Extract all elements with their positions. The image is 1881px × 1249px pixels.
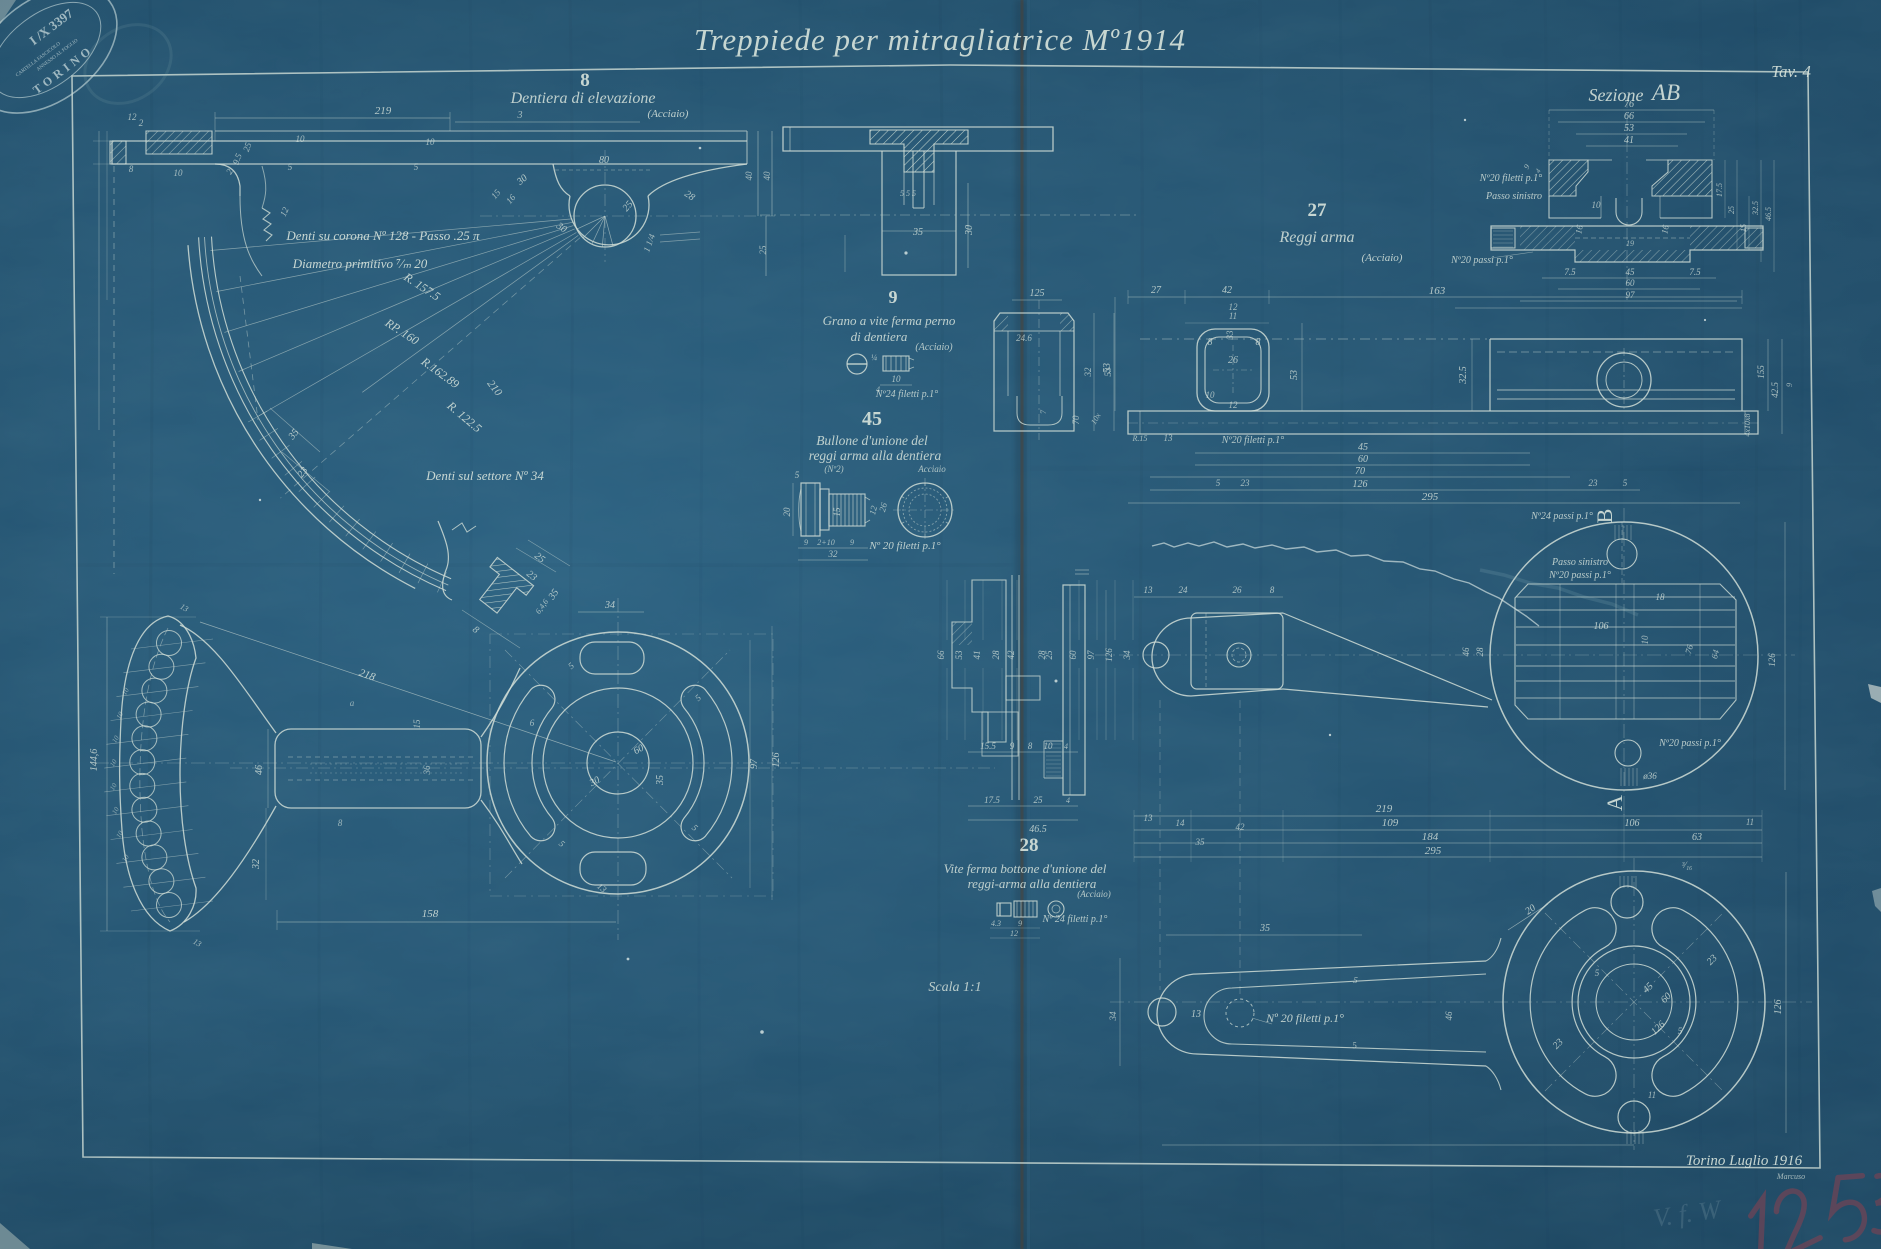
svg-text:Dentiera di elevazione: Dentiera di elevazione bbox=[510, 90, 656, 107]
svg-text:155: 155 bbox=[1756, 365, 1766, 379]
svg-text:53: 53 bbox=[954, 650, 964, 660]
svg-text:2: 2 bbox=[139, 118, 144, 128]
svg-text:32: 32 bbox=[1083, 367, 1093, 378]
svg-text:41: 41 bbox=[972, 651, 982, 660]
svg-text:106: 106 bbox=[1625, 818, 1640, 829]
svg-text:158: 158 bbox=[422, 908, 439, 920]
svg-text:42: 42 bbox=[1222, 285, 1232, 296]
svg-text:126: 126 bbox=[771, 753, 782, 768]
svg-text:Treppiede per mitragliatrice M: Treppiede per mitragliatrice Mº1914 bbox=[694, 22, 1186, 57]
svg-text:53: 53 bbox=[1289, 370, 1300, 380]
svg-text:25: 25 bbox=[1044, 650, 1054, 660]
svg-text:13: 13 bbox=[1191, 1009, 1201, 1020]
svg-text:5: 5 bbox=[1595, 968, 1600, 978]
svg-text:35: 35 bbox=[1259, 923, 1270, 934]
svg-text:25: 25 bbox=[1034, 795, 1044, 805]
svg-text:12: 12 bbox=[128, 112, 138, 122]
svg-text:18: 18 bbox=[1656, 592, 1666, 602]
svg-text:46: 46 bbox=[1444, 1011, 1454, 1021]
svg-text:10: 10 bbox=[296, 134, 306, 144]
svg-text:35: 35 bbox=[655, 775, 666, 786]
svg-text:46.5: 46.5 bbox=[1764, 207, 1773, 221]
svg-text:9: 9 bbox=[1785, 383, 1794, 387]
svg-text:10: 10 bbox=[426, 137, 436, 147]
svg-text:Nº20 filetti p.1°: Nº20 filetti p.1° bbox=[1479, 173, 1542, 184]
svg-text:28: 28 bbox=[991, 650, 1001, 660]
svg-text:9: 9 bbox=[850, 538, 854, 547]
svg-text:8: 8 bbox=[1256, 337, 1261, 348]
svg-text:8: 8 bbox=[129, 164, 134, 174]
svg-text:12: 12 bbox=[1229, 400, 1239, 410]
svg-text:5: 5 bbox=[288, 162, 293, 172]
svg-text:(Acciaio): (Acciaio) bbox=[648, 108, 689, 120]
svg-text:13: 13 bbox=[1144, 585, 1154, 595]
svg-text:Nº20 passi p.1°: Nº20 passi p.1° bbox=[1548, 570, 1611, 581]
svg-text:R.15: R.15 bbox=[1132, 434, 1148, 443]
svg-text:5: 5 bbox=[1678, 1026, 1683, 1036]
svg-text:12: 12 bbox=[1010, 929, 1018, 938]
svg-text:5: 5 bbox=[1623, 478, 1628, 488]
svg-text:12: 12 bbox=[1229, 302, 1239, 312]
svg-text:40: 40 bbox=[762, 171, 772, 181]
svg-text:Diametro primitivo ⁷⁄ₘ 20: Diametro primitivo ⁷⁄ₘ 20 bbox=[292, 256, 428, 271]
svg-text:Scala 1:1: Scala 1:1 bbox=[928, 980, 981, 995]
svg-text:7.5: 7.5 bbox=[1564, 267, 1576, 277]
svg-text:³⁄₁₆: ³⁄₁₆ bbox=[1682, 860, 1692, 870]
svg-text:42: 42 bbox=[1006, 650, 1016, 660]
svg-text:30: 30 bbox=[964, 225, 975, 236]
svg-text:8: 8 bbox=[1208, 337, 1213, 348]
svg-text:36: 36 bbox=[422, 765, 432, 776]
svg-text:Tav. 4: Tav. 4 bbox=[1771, 62, 1811, 81]
svg-text:42.5: 42.5 bbox=[1770, 382, 1780, 398]
svg-text:17.5: 17.5 bbox=[1715, 183, 1724, 197]
svg-text:a: a bbox=[350, 698, 355, 708]
svg-text:Denti sul settore Nº 34: Denti sul settore Nº 34 bbox=[425, 468, 544, 483]
svg-text:Grano a vite ferma perno: Grano a vite ferma perno bbox=[823, 313, 956, 328]
svg-text:45: 45 bbox=[1626, 267, 1636, 277]
svg-text:Nº24 passi p.1°: Nº24 passi p.1° bbox=[1530, 511, 1593, 522]
svg-text:219: 219 bbox=[1376, 803, 1393, 815]
svg-text:24: 24 bbox=[1179, 585, 1189, 595]
svg-text:35: 35 bbox=[912, 227, 923, 238]
svg-text:Passo sinistro: Passo sinistro bbox=[1485, 191, 1542, 202]
svg-text:8: 8 bbox=[580, 70, 590, 91]
svg-text:4x10x8: 4x10x8 bbox=[1743, 413, 1752, 436]
svg-text:35: 35 bbox=[1195, 837, 1206, 847]
svg-text:26: 26 bbox=[1233, 585, 1243, 595]
svg-text:5: 5 bbox=[1216, 478, 1221, 488]
svg-text:11: 11 bbox=[1746, 817, 1754, 827]
svg-text:5: 5 bbox=[414, 162, 419, 172]
svg-text:15: 15 bbox=[832, 507, 842, 517]
svg-text:8: 8 bbox=[1270, 585, 1275, 595]
svg-text:A: A bbox=[1602, 795, 1627, 811]
svg-text:Bullone d'unione del: Bullone d'unione del bbox=[816, 433, 928, 448]
svg-text:(Acciaio): (Acciaio) bbox=[1077, 889, 1110, 899]
svg-text:13: 13 bbox=[1144, 813, 1154, 823]
svg-text:10: 10 bbox=[1592, 200, 1602, 210]
svg-text:144,6: 144,6 bbox=[89, 749, 100, 772]
svg-text:9: 9 bbox=[1010, 741, 1015, 751]
svg-text:70: 70 bbox=[1355, 466, 1365, 477]
svg-text:Nº24 filetti p.1°: Nº24 filetti p.1° bbox=[875, 389, 938, 400]
svg-text:15: 15 bbox=[1739, 224, 1748, 232]
svg-text:45: 45 bbox=[862, 408, 882, 430]
svg-text:97: 97 bbox=[749, 758, 760, 769]
svg-text:126: 126 bbox=[1353, 479, 1368, 490]
svg-text:4: 4 bbox=[1066, 796, 1070, 805]
svg-text:5 5 5: 5 5 5 bbox=[900, 189, 916, 198]
svg-text:40: 40 bbox=[744, 171, 754, 181]
svg-text:Sezione: Sezione bbox=[1589, 85, 1644, 105]
svg-text:10: 10 bbox=[1640, 635, 1650, 645]
svg-text:9: 9 bbox=[804, 538, 808, 547]
svg-text:25: 25 bbox=[1727, 206, 1736, 214]
svg-text:125: 125 bbox=[1030, 288, 1045, 299]
svg-text:27: 27 bbox=[1151, 285, 1162, 296]
svg-text:20: 20 bbox=[782, 507, 792, 517]
svg-text:32: 32 bbox=[251, 859, 262, 870]
svg-text:Vite ferma bottone d'unione de: Vite ferma bottone d'unione del bbox=[944, 861, 1107, 876]
svg-text:10: 10 bbox=[1044, 741, 1054, 751]
svg-text:Nº 20 filetti p.1°: Nº 20 filetti p.1° bbox=[868, 540, 941, 552]
svg-text:109: 109 bbox=[1382, 817, 1399, 829]
svg-text:2+10: 2+10 bbox=[817, 538, 834, 547]
svg-text:19: 19 bbox=[1626, 239, 1634, 248]
svg-text:Torino Luglio 1916: Torino Luglio 1916 bbox=[1686, 1153, 1803, 1169]
svg-text:Nº 20 filetti p.1°: Nº 20 filetti p.1° bbox=[1265, 1011, 1344, 1025]
svg-text:10: 10 bbox=[892, 374, 902, 384]
svg-text:8: 8 bbox=[1028, 741, 1033, 751]
svg-text:63: 63 bbox=[1692, 832, 1702, 843]
svg-text:53: 53 bbox=[1102, 363, 1113, 373]
svg-text:32: 32 bbox=[828, 549, 839, 559]
svg-text:Reggi arma: Reggi arma bbox=[1278, 229, 1354, 246]
svg-text:41: 41 bbox=[1624, 135, 1634, 146]
svg-text:4.3: 4.3 bbox=[991, 919, 1001, 928]
svg-text:34: 34 bbox=[1108, 1011, 1118, 1022]
svg-text:13: 13 bbox=[1164, 433, 1174, 443]
svg-text:8: 8 bbox=[338, 818, 343, 828]
svg-text:23: 23 bbox=[1589, 478, 1599, 488]
svg-text:6: 6 bbox=[530, 718, 535, 728]
svg-text:di dentiera: di dentiera bbox=[851, 329, 908, 344]
svg-text:10: 10 bbox=[174, 168, 184, 178]
svg-text:106: 106 bbox=[1594, 621, 1609, 632]
svg-text:70: 70 bbox=[1071, 415, 1081, 425]
svg-text:60: 60 bbox=[1068, 650, 1078, 660]
svg-text:28: 28 bbox=[1020, 835, 1039, 856]
svg-text:97: 97 bbox=[1086, 650, 1096, 660]
svg-text:15: 15 bbox=[412, 719, 422, 729]
svg-text:¼: ¼ bbox=[871, 353, 877, 362]
svg-text:7.5: 7.5 bbox=[1689, 267, 1701, 277]
svg-text:14: 14 bbox=[1176, 818, 1186, 828]
svg-text:46.5: 46.5 bbox=[1029, 824, 1047, 835]
svg-text:66: 66 bbox=[936, 650, 946, 660]
svg-text:Nº20 filetti p.1°: Nº20 filetti p.1° bbox=[1221, 435, 1284, 446]
svg-text:76: 76 bbox=[1624, 99, 1634, 110]
svg-text:AB: AB bbox=[1650, 80, 1680, 105]
svg-text:80: 80 bbox=[599, 155, 609, 166]
svg-text:66: 66 bbox=[1624, 111, 1634, 122]
svg-text:53: 53 bbox=[1624, 123, 1634, 134]
svg-text:15.5: 15.5 bbox=[980, 741, 996, 751]
svg-text:60: 60 bbox=[1358, 454, 1368, 465]
svg-text:Nº 24 filetti p.1°: Nº 24 filetti p.1° bbox=[1042, 914, 1108, 925]
svg-text:4: 4 bbox=[1064, 742, 1068, 751]
svg-text:10: 10 bbox=[1206, 390, 1216, 400]
svg-text:Acciaio: Acciaio bbox=[917, 464, 946, 474]
svg-text:23: 23 bbox=[1241, 478, 1251, 488]
svg-text:163: 163 bbox=[1429, 285, 1446, 297]
svg-text:Nº20 passi p.1°: Nº20 passi p.1° bbox=[1658, 738, 1721, 749]
svg-text:(Nº2): (Nº2) bbox=[824, 464, 843, 474]
svg-text:24.6: 24.6 bbox=[1016, 333, 1032, 343]
svg-text:32.5: 32.5 bbox=[1751, 201, 1760, 216]
svg-text:33: 33 bbox=[1225, 330, 1235, 341]
svg-text:26: 26 bbox=[1228, 355, 1238, 366]
svg-text:97: 97 bbox=[1626, 290, 1636, 300]
svg-text:46: 46 bbox=[254, 765, 265, 775]
svg-text:32.5: 32.5 bbox=[1458, 366, 1469, 385]
svg-text:5: 5 bbox=[795, 470, 800, 480]
svg-text:Nº20 passi p.1°: Nº20 passi p.1° bbox=[1450, 255, 1513, 266]
svg-text:9: 9 bbox=[889, 287, 898, 307]
svg-text:184: 184 bbox=[1422, 831, 1439, 843]
svg-text:3: 3 bbox=[517, 110, 523, 121]
svg-text:219: 219 bbox=[375, 105, 392, 117]
svg-text:45: 45 bbox=[1358, 442, 1368, 453]
svg-text:11: 11 bbox=[1229, 311, 1237, 321]
svg-text:(Acciaio): (Acciaio) bbox=[915, 342, 953, 353]
svg-text:(Acciaio): (Acciaio) bbox=[1362, 252, 1403, 264]
svg-text:34: 34 bbox=[604, 600, 615, 611]
svg-text:reggi arma alla dentiera: reggi arma alla dentiera bbox=[809, 448, 942, 463]
svg-text:11: 11 bbox=[1648, 1090, 1656, 1100]
svg-text:60: 60 bbox=[1626, 278, 1636, 288]
svg-text:295: 295 bbox=[1422, 491, 1439, 503]
svg-text:17.5: 17.5 bbox=[984, 795, 1000, 805]
svg-text:27: 27 bbox=[1308, 200, 1328, 221]
svg-text:295: 295 bbox=[1425, 845, 1442, 857]
svg-text:Denti su corona Nº 128 - Passo: Denti su corona Nº 128 - Passo .25 π bbox=[285, 228, 480, 243]
svg-text:25: 25 bbox=[758, 245, 768, 255]
svg-text:Marcuso: Marcuso bbox=[1776, 1172, 1805, 1181]
svg-text:9: 9 bbox=[1018, 919, 1022, 928]
svg-text:126: 126 bbox=[1773, 1000, 1784, 1015]
svg-text:Passo sinistro: Passo sinistro bbox=[1551, 557, 1608, 568]
svg-text:ø36: ø36 bbox=[1642, 771, 1657, 781]
svg-text:B: B bbox=[1592, 509, 1617, 524]
